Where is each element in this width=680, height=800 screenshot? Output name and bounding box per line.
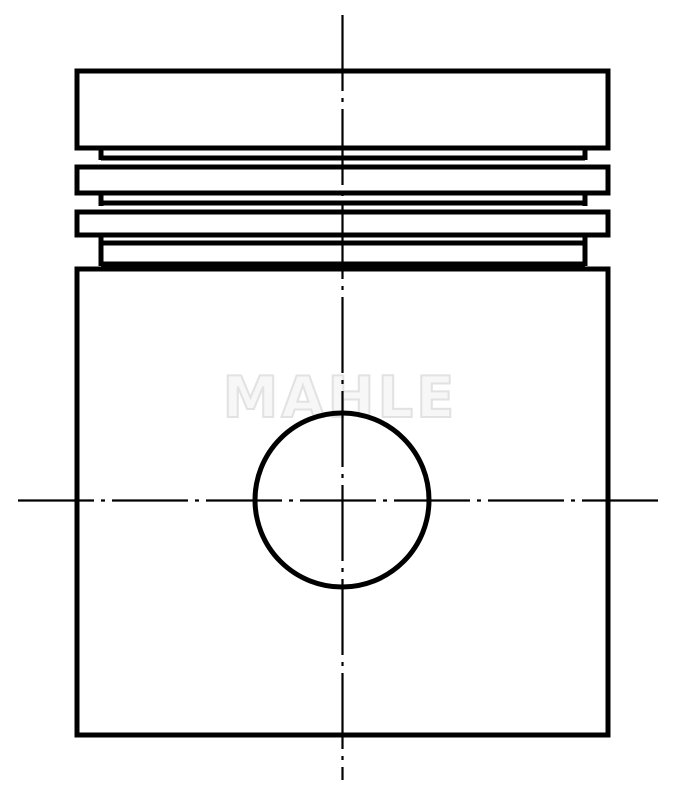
piston-technical-drawing: MAHLE bbox=[0, 0, 680, 800]
piston-drawing-canvas bbox=[0, 0, 680, 800]
